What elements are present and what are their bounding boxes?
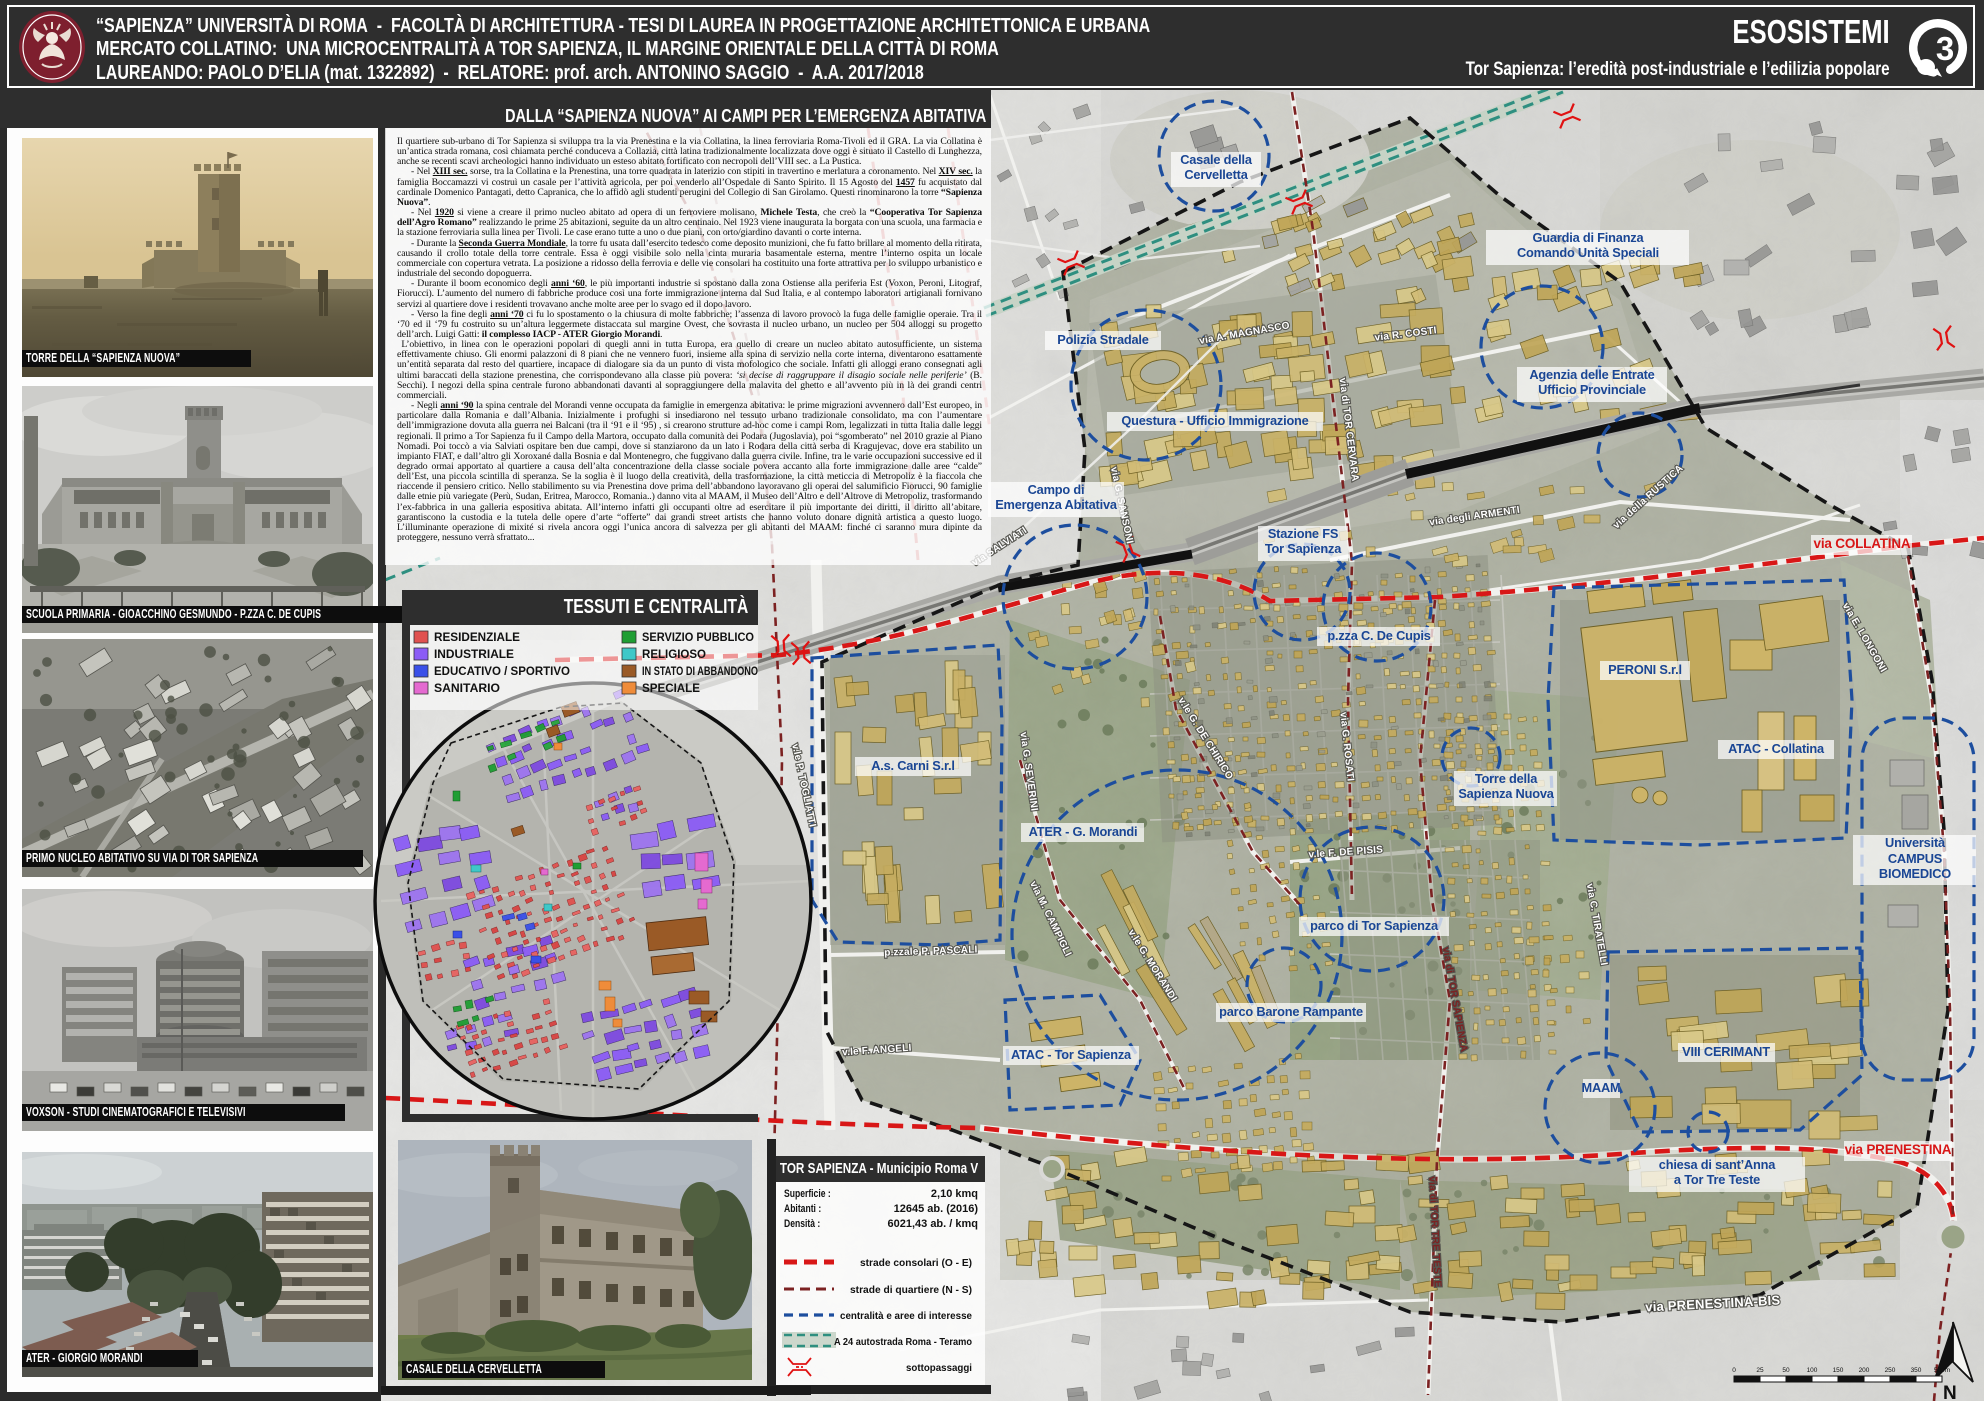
svg-text:100: 100 (1807, 1367, 1818, 1374)
svg-text:Guardia di Finanza: Guardia di Finanza (1533, 230, 1645, 245)
svg-text:Università: Università (1885, 835, 1946, 850)
svg-text:500m: 500m (1934, 1367, 1950, 1374)
svg-text:BIOMEDICO: BIOMEDICO (1879, 866, 1951, 881)
svg-text:Cervelletta: Cervelletta (1184, 167, 1248, 182)
svg-text:25: 25 (1756, 1367, 1764, 1374)
svg-text:centralità e aree di interesse: centralità e aree di interesse (840, 1310, 972, 1322)
svg-text:ATAC - Tor Sapienza: ATAC - Tor Sapienza (1011, 1047, 1132, 1062)
svg-text:via PRENESTINA: via PRENESTINA (1845, 1142, 1952, 1157)
svg-text:EDUCATIVO / SPORTIVO: EDUCATIVO / SPORTIVO (434, 666, 570, 678)
svg-text:Torre della: Torre della (1475, 771, 1538, 786)
svg-text:Tor Sapienza: Tor Sapienza (1265, 541, 1342, 556)
svg-text:CAMPUS: CAMPUS (1888, 851, 1943, 866)
svg-text:INDUSTRIALE: INDUSTRIALE (434, 649, 514, 661)
svg-text:chiesa di sant’Anna: chiesa di sant’Anna (1659, 1157, 1776, 1172)
svg-text:350: 350 (1911, 1367, 1922, 1374)
svg-text:IN STATO DI ABBANDONO: IN STATO DI ABBANDONO (642, 666, 758, 678)
svg-text:Questura - Ufficio Immigrazion: Questura - Ufficio Immigrazione (1121, 413, 1308, 428)
svg-text:MAAM: MAAM (1581, 1080, 1620, 1095)
svg-text:0: 0 (1732, 1367, 1736, 1374)
svg-text:Comando Unità Speciali: Comando Unità Speciali (1517, 245, 1659, 260)
svg-text:SPECIALE: SPECIALE (642, 683, 700, 695)
svg-text:Emergenza Abitativa: Emergenza Abitativa (995, 497, 1118, 512)
svg-text:RESIDENZIALE: RESIDENZIALE (434, 632, 520, 644)
svg-text:strade consolari (O - E): strade consolari (O - E) (860, 1257, 972, 1269)
svg-text:parco Barone Rampante: parco Barone Rampante (1219, 1004, 1363, 1019)
svg-text:VIII CERIMANT: VIII CERIMANT (1682, 1044, 1770, 1059)
svg-text:Campo di: Campo di (1028, 482, 1085, 497)
svg-text:strade di quartiere (N - S): strade di quartiere (N - S) (850, 1284, 972, 1296)
svg-text:via COLLATINA: via COLLATINA (1814, 536, 1911, 551)
svg-text:SERVIZIO PUBBLICO: SERVIZIO PUBBLICO (642, 632, 754, 644)
svg-text:ATAC - Collatina: ATAC - Collatina (1728, 741, 1825, 756)
svg-text:SANITARIO: SANITARIO (434, 683, 500, 695)
svg-text:3: 3 (1936, 30, 1954, 67)
svg-text:RELIGIOSO: RELIGIOSO (642, 649, 706, 661)
svg-text:p.zza C. De Cupis: p.zza C. De Cupis (1327, 628, 1430, 643)
svg-text:Casale della: Casale della (1180, 152, 1253, 167)
svg-text:250: 250 (1885, 1367, 1896, 1374)
svg-text:A 24 autostrada Roma - Teramo: A 24 autostrada Roma - Teramo (834, 1336, 972, 1348)
svg-text:Agenzia delle Entrate: Agenzia delle Entrate (1529, 367, 1654, 382)
svg-text:N: N (1943, 1383, 1957, 1401)
svg-text:Polizia Stradale: Polizia Stradale (1057, 332, 1148, 347)
svg-text:Sapienza Nuova: Sapienza Nuova (1458, 786, 1554, 801)
svg-text:parco di Tor Sapienza: parco di Tor Sapienza (1310, 918, 1439, 933)
svg-text:ATER - G. Morandi: ATER - G. Morandi (1029, 824, 1138, 839)
svg-text:50: 50 (1782, 1367, 1790, 1374)
svg-text:A.s. Carni S.r.l: A.s. Carni S.r.l (871, 758, 955, 773)
svg-text:Stazione FS: Stazione FS (1268, 526, 1339, 541)
svg-text:200: 200 (1859, 1367, 1870, 1374)
svg-text:PERONI S.r.l: PERONI S.r.l (1608, 662, 1682, 677)
svg-text:sottopassaggi: sottopassaggi (906, 1362, 972, 1374)
svg-text:Ufficio Provinciale: Ufficio Provinciale (1538, 382, 1646, 397)
svg-text:150: 150 (1833, 1367, 1844, 1374)
svg-text:a Tor Tre Teste: a Tor Tre Teste (1674, 1172, 1760, 1187)
